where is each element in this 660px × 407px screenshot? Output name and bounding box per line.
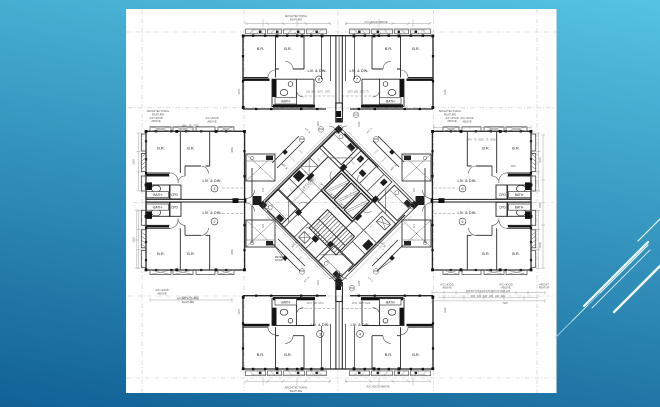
svg-text:B.R.: B.R. bbox=[157, 146, 165, 151]
svg-text:CPD: CPD bbox=[171, 206, 178, 210]
svg-text:LIV. & DIN.: LIV. & DIN. bbox=[202, 178, 221, 183]
svg-text:ARCHITECTURAL: ARCHITECTURAL bbox=[177, 297, 200, 301]
svg-text:B.R.: B.R. bbox=[512, 251, 520, 256]
svg-text:2025: 2025 bbox=[538, 202, 541, 208]
svg-text:FEATURE: FEATURE bbox=[290, 18, 303, 22]
svg-text:1560 75 1530: 1560 75 1530 bbox=[181, 124, 199, 127]
svg-text:420: 420 bbox=[262, 223, 265, 228]
svg-text:B.R.: B.R. bbox=[412, 46, 420, 51]
svg-text:A/C HOOD: A/C HOOD bbox=[499, 282, 512, 286]
svg-text:B.R.: B.R. bbox=[482, 251, 490, 256]
svg-text:1075: 1075 bbox=[357, 280, 360, 286]
svg-text:420: 420 bbox=[412, 224, 415, 229]
svg-text:LIV. & DIN.: LIV. & DIN. bbox=[307, 68, 326, 73]
svg-text:CPD: CPD bbox=[499, 193, 506, 197]
svg-text:FEATURE: FEATURE bbox=[182, 300, 195, 304]
svg-text:·BATH·: ·BATH· bbox=[385, 300, 395, 304]
svg-text:1075: 1075 bbox=[238, 309, 241, 315]
svg-text:A/C HOOD ABOVE: A/C HOOD ABOVE bbox=[364, 20, 387, 24]
svg-text:4: 4 bbox=[359, 332, 361, 336]
svg-text:ABOVE: ABOVE bbox=[151, 119, 160, 123]
svg-text:CPD: CPD bbox=[171, 193, 178, 197]
svg-text:LIV. & DIN.: LIV. & DIN. bbox=[349, 68, 368, 73]
svg-text:6: 6 bbox=[462, 187, 464, 191]
svg-text:ABOVE: ABOVE bbox=[442, 286, 451, 290]
svg-text:1075: 1075 bbox=[357, 121, 360, 127]
svg-text:3050: 3050 bbox=[231, 249, 234, 255]
svg-text:2475 75 2025 75 2600: 2475 75 2025 75 2600 bbox=[466, 139, 496, 142]
svg-text:A/C HOOD: A/C HOOD bbox=[445, 116, 458, 120]
svg-text:LIV. & DIN.: LIV. & DIN. bbox=[202, 210, 221, 215]
svg-text:A/C HOOD ABOVE: A/C HOOD ABOVE bbox=[366, 385, 389, 389]
svg-text:3050: 3050 bbox=[231, 147, 234, 153]
svg-text:ABOVE: ABOVE bbox=[207, 119, 216, 123]
svg-text:B.R.: B.R. bbox=[385, 46, 393, 51]
svg-text:ARCHIT: ARCHIT bbox=[539, 282, 549, 286]
svg-text:2: 2 bbox=[214, 220, 216, 224]
svg-text:A/C HOOD: A/C HOOD bbox=[155, 288, 168, 292]
svg-text:100 995 1070 1075: 100 995 1070 1075 bbox=[306, 91, 331, 94]
svg-text:B.R.: B.R. bbox=[284, 46, 292, 51]
svg-text:A/C HOOD: A/C HOOD bbox=[460, 116, 473, 120]
svg-text:FEATURE: FEATURE bbox=[152, 112, 165, 116]
svg-text:420: 420 bbox=[262, 187, 265, 192]
svg-text:ABOVE: ABOVE bbox=[501, 286, 510, 290]
svg-text:7925: 7925 bbox=[502, 302, 508, 305]
svg-text:A/C HOOD: A/C HOOD bbox=[205, 116, 218, 120]
svg-text:LIV. & DIN.: LIV. & DIN. bbox=[457, 210, 476, 215]
svg-text:B.R.: B.R. bbox=[257, 46, 265, 51]
svg-text:FEATURE: FEATURE bbox=[290, 389, 303, 393]
svg-text:1075 025 1575 75: 1075 025 1575 75 bbox=[347, 91, 369, 94]
svg-text:BATH·: BATH· bbox=[515, 193, 524, 197]
svg-text:2350: 2350 bbox=[133, 237, 136, 243]
svg-text:100 100 100 100 100: 100 100 100 100 100 100 bbox=[471, 295, 506, 298]
svg-text:A/C HOOD: A/C HOOD bbox=[440, 282, 453, 286]
svg-text:·BATH·: ·BATH· bbox=[152, 193, 162, 197]
svg-text:5: 5 bbox=[462, 220, 464, 224]
svg-text:ARCHITECTURAL: ARCHITECTURAL bbox=[147, 109, 170, 113]
svg-text:LIV. & DIN.: LIV. & DIN. bbox=[350, 322, 369, 327]
svg-text:FEATURE: FEATURE bbox=[444, 112, 457, 116]
svg-text:7: 7 bbox=[356, 78, 358, 82]
svg-text:B.R.: B.R. bbox=[412, 352, 420, 357]
svg-text:B.R.: B.R. bbox=[512, 146, 520, 151]
svg-text:ARCHITECTURAL: ARCHITECTURAL bbox=[439, 109, 462, 113]
svg-text:B.R.: B.R. bbox=[385, 352, 393, 357]
svg-text:1075: 1075 bbox=[317, 121, 320, 127]
svg-text:B.R.: B.R. bbox=[482, 146, 490, 151]
svg-text:A/C HOOD: A/C HOOD bbox=[149, 116, 162, 120]
svg-text:1530: 1530 bbox=[510, 165, 516, 168]
svg-text:970 670 975 1000 670 595 670 1: 970 670 975 1000 670 595 670 1985 225 bbox=[466, 290, 511, 293]
svg-text:B.R.: B.R. bbox=[187, 251, 195, 256]
svg-text:2600: 2600 bbox=[538, 242, 541, 248]
svg-text:ABOVE: ABOVE bbox=[462, 119, 471, 123]
svg-text:·BATH·: ·BATH· bbox=[281, 99, 291, 103]
svg-text:·BATH·: ·BATH· bbox=[281, 300, 291, 304]
svg-text:B.R.: B.R. bbox=[257, 352, 265, 357]
svg-text:B.R.: B.R. bbox=[187, 146, 195, 151]
svg-text:FEATUR: FEATUR bbox=[539, 286, 550, 290]
svg-text:420: 420 bbox=[412, 188, 415, 193]
svg-text:1070 225 1070: 1070 225 1070 bbox=[306, 302, 324, 305]
svg-text:1075: 1075 bbox=[443, 89, 446, 95]
svg-text:CPD: CPD bbox=[499, 206, 506, 210]
svg-text:B.R.: B.R. bbox=[284, 352, 292, 357]
svg-text:1075: 1075 bbox=[238, 89, 241, 95]
svg-text:8: 8 bbox=[318, 78, 320, 82]
svg-text:LIV. & DIN.: LIV. & DIN. bbox=[310, 322, 329, 327]
svg-text:2350: 2350 bbox=[133, 159, 136, 165]
svg-text:3: 3 bbox=[319, 332, 321, 336]
svg-text:LIV. & DIN.: LIV. & DIN. bbox=[457, 178, 476, 183]
svg-text:B.R.: B.R. bbox=[157, 251, 165, 256]
svg-text:1075: 1075 bbox=[443, 307, 446, 313]
svg-text:1: 1 bbox=[214, 187, 216, 191]
svg-text:BATH·: BATH· bbox=[515, 206, 524, 210]
svg-text:1075: 1075 bbox=[317, 280, 320, 286]
svg-text:1070 3985 1100: 1070 3985 1100 bbox=[352, 302, 371, 305]
svg-text:ARCHITECTURAL: ARCHITECTURAL bbox=[285, 14, 308, 18]
svg-text:2475: 2475 bbox=[538, 157, 541, 163]
svg-text:·BATH·: ·BATH· bbox=[152, 206, 162, 210]
svg-text:ABOVE: ABOVE bbox=[447, 119, 456, 123]
svg-text:·BATH·: ·BATH· bbox=[385, 99, 395, 103]
svg-text:ARCHITECTURAL: ARCHITECTURAL bbox=[285, 386, 308, 390]
svg-text:ROOM: ROOM bbox=[275, 259, 282, 262]
svg-text:ABOVE: ABOVE bbox=[157, 291, 166, 295]
